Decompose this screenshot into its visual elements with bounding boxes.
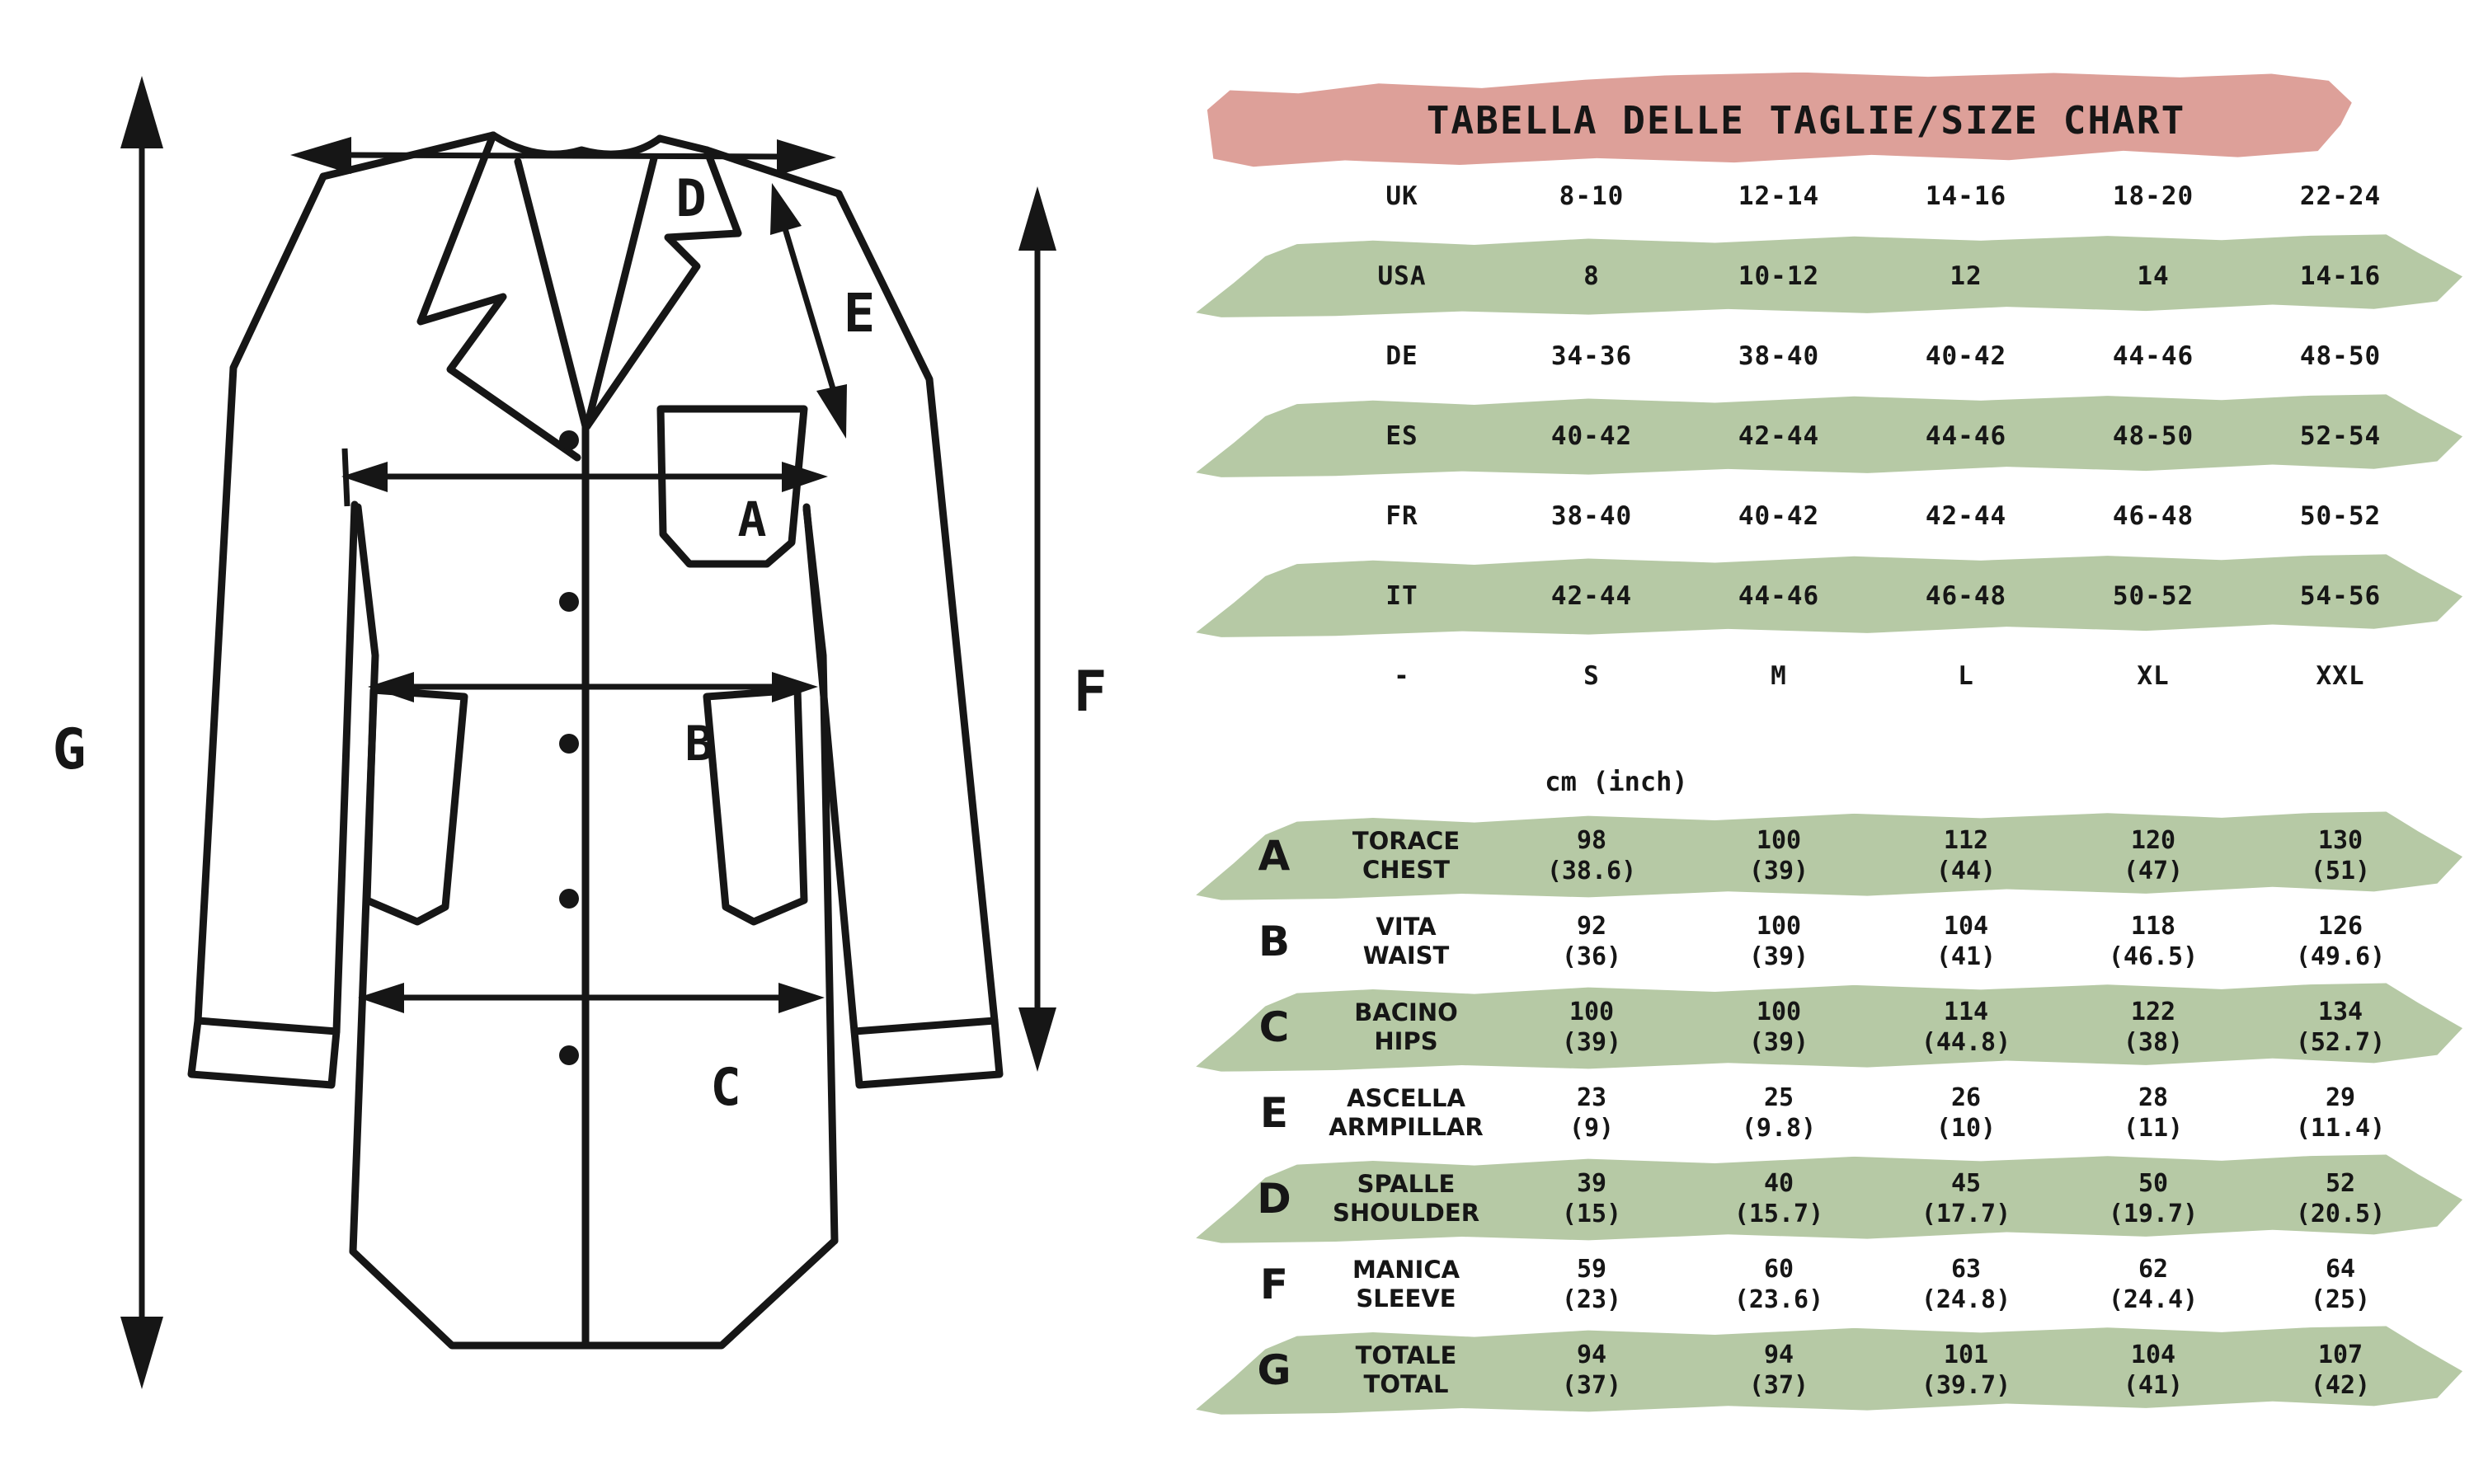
size-value-cell: 22-24: [2253, 156, 2428, 236]
size-value-cell: XL: [2066, 636, 2241, 716]
value-inch: (15): [1562, 1199, 1621, 1229]
value-inch: (23.6): [1734, 1284, 1823, 1315]
size-value-cell: 38-40: [1504, 476, 1679, 556]
measurement-row: FMANICASLEEVE59(23)60(23.6)63(24.8)62(24…: [1221, 1242, 2474, 1327]
value-cm: 92: [1577, 911, 1606, 942]
value-inch: (10): [1936, 1113, 1996, 1144]
region-cell: IT: [1332, 556, 1472, 636]
arrow-A-head-right: [782, 462, 828, 492]
arrow-G-head-bottom: [120, 1317, 163, 1389]
value-inch: (46.5): [2109, 942, 2198, 972]
lab-coat-diagram: A B C D E F G: [0, 0, 1221, 1484]
arrow-F-head-bottom: [1018, 1007, 1056, 1072]
value-inch: (20.5): [2296, 1199, 2385, 1229]
size-value-cell: 12: [1879, 236, 2053, 316]
size-value-cell: 34-36: [1504, 316, 1679, 396]
value-inch: (52.7): [2296, 1027, 2385, 1058]
measurement-row: BVITAWAIST92(36)100(39)104(41)118(46.5)1…: [1221, 899, 2474, 984]
value-cm: 107: [2318, 1340, 2363, 1370]
value-inch: (39): [1749, 1027, 1808, 1058]
measure-value-cell: 100(39): [1691, 984, 1866, 1070]
region-cell: UK: [1332, 156, 1472, 236]
size-value-cell: L: [1879, 636, 2053, 716]
value-inch: (47): [2124, 856, 2183, 886]
coat-left-sleeve-inner: [336, 505, 355, 1031]
measure-value-cell: 120(47): [2066, 813, 2241, 899]
value-inch: (9): [1569, 1113, 1614, 1144]
region-cell: DE: [1332, 316, 1472, 396]
value-inch: (25): [2311, 1284, 2370, 1315]
size-value-cell: XXL: [2253, 636, 2428, 716]
value-cm: 101: [1944, 1340, 1988, 1370]
value-cm: 40: [1764, 1168, 1794, 1199]
value-cm: 94: [1764, 1340, 1794, 1370]
measure-value-cell: 52(20.5): [2253, 1156, 2428, 1242]
measure-name-en: TOTAL: [1364, 1370, 1449, 1399]
coat-neck-v: [518, 158, 654, 426]
size-value-cell: 48-50: [2253, 316, 2428, 396]
measure-name-it: SPALLE: [1357, 1170, 1456, 1199]
measure-value-cell: 104(41): [2066, 1327, 2241, 1413]
measure-name-it: VITA: [1376, 913, 1436, 942]
measure-value-cell: 59(23): [1504, 1242, 1679, 1327]
conversion-row: UK8-1012-1414-1618-2022-24: [1221, 156, 2474, 236]
measure-value-cell: 60(23.6): [1691, 1242, 1866, 1327]
measure-value-cell: 64(25): [2253, 1242, 2428, 1327]
measure-value-cell: 94(37): [1504, 1327, 1679, 1413]
coat-right-lapel: [587, 150, 738, 426]
size-value-cell: 42-44: [1691, 396, 1866, 476]
coat-left-pocket: [367, 690, 464, 922]
arrow-C-head-right: [778, 983, 825, 1013]
value-inch: (36): [1562, 942, 1621, 972]
size-value-cell: 50-52: [2253, 476, 2428, 556]
value-inch: (49.6): [2296, 942, 2385, 972]
measure-name-cell: TOTALETOTAL: [1278, 1327, 1534, 1413]
value-cm: 98: [1577, 825, 1606, 856]
value-cm: 28: [2138, 1082, 2168, 1113]
measure-value-cell: 29(11.4): [2253, 1070, 2428, 1156]
button-5: [559, 1045, 579, 1065]
arrow-E-head-top: [770, 183, 802, 235]
arrow-G-head-top: [120, 76, 163, 148]
size-value-cell: 40-42: [1691, 476, 1866, 556]
arrow-E-head-bottom: [816, 384, 847, 439]
arrow-D-head-right: [777, 139, 836, 176]
value-inch: (15.7): [1734, 1199, 1823, 1229]
measure-name-en: ARMPILLAR: [1329, 1113, 1483, 1142]
value-inch: (38.6): [1547, 856, 1636, 886]
page-title: TABELLA DELLE TAGLIE/SIZE CHART: [1221, 82, 2392, 158]
value-inch: (19.7): [2109, 1199, 2198, 1229]
size-value-cell: 46-48: [1879, 556, 2053, 636]
arrow-D-head-left: [290, 137, 351, 174]
value-inch: (39): [1562, 1027, 1621, 1058]
arrow-F-head-top: [1018, 186, 1056, 251]
measure-value-cell: 100(39): [1691, 813, 1866, 899]
size-value-cell: 12-14: [1691, 156, 1866, 236]
size-value-cell: 54-56: [2253, 556, 2428, 636]
measure-name-cell: TORACECHEST: [1278, 813, 1534, 899]
value-inch: (39): [1749, 942, 1808, 972]
region-cell: FR: [1332, 476, 1472, 556]
arrow-D: [346, 155, 783, 157]
measure-name-en: SLEEVE: [1356, 1284, 1456, 1313]
value-inch: (41): [2124, 1370, 2183, 1401]
measure-name-it: TORACE: [1352, 827, 1460, 856]
value-inch: (17.7): [1921, 1199, 2011, 1229]
value-cm: 120: [2131, 825, 2175, 856]
value-inch: (24.8): [1921, 1284, 2011, 1315]
value-cm: 59: [1577, 1254, 1606, 1284]
coat-right-pocket: [707, 690, 804, 922]
value-cm: 94: [1577, 1340, 1606, 1370]
button-4: [559, 889, 579, 909]
value-cm: 39: [1577, 1168, 1606, 1199]
value-cm: 52: [2326, 1168, 2355, 1199]
value-cm: 100: [1569, 997, 1614, 1027]
measure-value-cell: 107(42): [2253, 1327, 2428, 1413]
measure-name-en: CHEST: [1362, 856, 1450, 885]
value-inch: (44.8): [1921, 1027, 2011, 1058]
size-value-cell: 52-54: [2253, 396, 2428, 476]
region-cell: -: [1332, 636, 1472, 716]
conversion-row: USA810-12121414-16: [1221, 236, 2474, 316]
coat-left-sleeve-outer: [198, 176, 323, 1021]
size-value-cell: 44-46: [1691, 556, 1866, 636]
measure-value-cell: 94(37): [1691, 1327, 1866, 1413]
size-chart-panel: TABELLA DELLE TAGLIE/SIZE CHART UK8-1012…: [1221, 0, 2474, 1484]
measure-value-cell: 39(15): [1504, 1156, 1679, 1242]
measure-name-cell: ASCELLAARMPILLAR: [1278, 1070, 1534, 1156]
coat-hem: [353, 1241, 835, 1345]
size-value-cell: 46-48: [2066, 476, 2241, 556]
diagram-label-B: B: [685, 716, 714, 772]
value-cm: 104: [2131, 1340, 2175, 1370]
measurement-row: GTOTALETOTAL94(37)94(37)101(39.7)104(41)…: [1221, 1327, 2474, 1413]
value-cm: 100: [1757, 825, 1801, 856]
value-inch: (39.7): [1921, 1370, 2011, 1401]
measure-value-cell: 23(9): [1504, 1070, 1679, 1156]
measure-name-it: ASCELLA: [1347, 1084, 1465, 1113]
units-header: cm (inch): [1501, 757, 1732, 806]
value-inch: (24.4): [2109, 1284, 2198, 1315]
conversion-row: FR38-4040-4242-4446-4850-52: [1221, 476, 2474, 556]
region-cell: USA: [1332, 236, 1472, 316]
coat-right-body: [807, 510, 835, 1241]
value-cm: 122: [2131, 997, 2175, 1027]
coat-right-cuff: [854, 1021, 999, 1085]
value-cm: 112: [1944, 825, 1988, 856]
measure-value-cell: 112(44): [1879, 813, 2053, 899]
size-value-cell: 48-50: [2066, 396, 2241, 476]
value-cm: 50: [2138, 1168, 2168, 1199]
size-value-cell: 8: [1504, 236, 1679, 316]
size-value-cell: 50-52: [2066, 556, 2241, 636]
region-cell: ES: [1332, 396, 1472, 476]
value-cm: 64: [2326, 1254, 2355, 1284]
measure-value-cell: 101(39.7): [1879, 1327, 2053, 1413]
value-cm: 26: [1951, 1082, 1981, 1113]
value-cm: 126: [2318, 911, 2363, 942]
measure-name-cell: BACINOHIPS: [1278, 984, 1534, 1070]
value-cm: 62: [2138, 1254, 2168, 1284]
diagram-label-D: D: [675, 168, 706, 228]
measure-name-cell: SPALLESHOULDER: [1278, 1156, 1534, 1242]
measure-value-cell: 40(15.7): [1691, 1156, 1866, 1242]
size-value-cell: S: [1504, 636, 1679, 716]
size-value-cell: 10-12: [1691, 236, 1866, 316]
diagram-label-E: E: [844, 284, 876, 345]
conversion-row: ES40-4242-4444-4648-5052-54: [1221, 396, 2474, 476]
measure-name-it: MANICA: [1352, 1256, 1460, 1284]
measure-value-cell: 28(11): [2066, 1070, 2241, 1156]
measure-name-en: WAIST: [1363, 942, 1450, 970]
measure-value-cell: 45(17.7): [1879, 1156, 2053, 1242]
measure-name-cell: MANICASLEEVE: [1278, 1242, 1534, 1327]
size-value-cell: 44-46: [2066, 316, 2241, 396]
size-value-cell: 14-16: [1879, 156, 2053, 236]
measure-value-cell: 92(36): [1504, 899, 1679, 984]
size-value-cell: 38-40: [1691, 316, 1866, 396]
value-inch: (42): [2311, 1370, 2370, 1401]
value-inch: (41): [1936, 942, 1996, 972]
measure-name-it: BACINO: [1354, 998, 1458, 1027]
measure-name-en: HIPS: [1374, 1027, 1437, 1056]
value-cm: 134: [2318, 997, 2363, 1027]
measure-value-cell: 62(24.4): [2066, 1242, 2241, 1327]
size-value-cell: 14-16: [2253, 236, 2428, 316]
measurement-row: EASCELLAARMPILLAR23(9)25(9.8)26(10)28(11…: [1221, 1070, 2474, 1156]
value-cm: 104: [1944, 911, 1988, 942]
measurement-row: DSPALLESHOULDER39(15)40(15.7)45(17.7)50(…: [1221, 1156, 2474, 1242]
size-value-cell: 18-20: [2066, 156, 2241, 236]
coat-left-cuff: [191, 1021, 336, 1085]
size-value-cell: 44-46: [1879, 396, 2053, 476]
value-inch: (11): [2124, 1113, 2183, 1144]
value-inch: (9.8): [1742, 1113, 1816, 1144]
diagram-label-G: G: [53, 717, 87, 782]
value-cm: 45: [1951, 1168, 1981, 1199]
value-cm: 23: [1577, 1082, 1606, 1113]
conversion-row: -SMLXLXXL: [1221, 636, 2474, 716]
size-value-cell: 40-42: [1879, 316, 2053, 396]
coat-back-collar: [493, 135, 660, 154]
value-inch: (11.4): [2296, 1113, 2385, 1144]
measure-value-cell: 114(44.8): [1879, 984, 2053, 1070]
value-inch: (37): [1749, 1370, 1808, 1401]
button-1: [559, 430, 579, 450]
value-cm: 100: [1757, 997, 1801, 1027]
measure-value-cell: 100(39): [1691, 899, 1866, 984]
size-value-cell: 42-44: [1504, 556, 1679, 636]
size-value-cell: 40-42: [1504, 396, 1679, 476]
measure-value-cell: 130(51): [2253, 813, 2428, 899]
value-cm: 100: [1757, 911, 1801, 942]
diagram-label-C: C: [710, 1057, 741, 1117]
value-inch: (39): [1749, 856, 1808, 886]
size-value-cell: M: [1691, 636, 1866, 716]
arrow-E: [784, 226, 835, 394]
measure-value-cell: 25(9.8): [1691, 1070, 1866, 1156]
value-inch: (37): [1562, 1370, 1621, 1401]
value-cm: 25: [1764, 1082, 1794, 1113]
size-chart-page: A B C D E F G TABELLA DELLE TAGLIE/SIZE …: [0, 0, 2474, 1484]
value-inch: (44): [1936, 856, 1996, 886]
measure-value-cell: 50(19.7): [2066, 1156, 2241, 1242]
value-inch: (51): [2311, 856, 2370, 886]
measurement-row: ATORACECHEST98(38.6)100(39)112(44)120(47…: [1221, 813, 2474, 899]
measure-value-cell: 118(46.5): [2066, 899, 2241, 984]
size-value-cell: 42-44: [1879, 476, 2053, 556]
value-cm: 118: [2131, 911, 2175, 942]
value-inch: (23): [1562, 1284, 1621, 1315]
value-cm: 63: [1951, 1254, 1981, 1284]
measure-name-it: TOTALE: [1356, 1341, 1457, 1370]
measure-name-cell: VITAWAIST: [1278, 899, 1534, 984]
measure-value-cell: 122(38): [2066, 984, 2241, 1070]
measure-value-cell: 134(52.7): [2253, 984, 2428, 1070]
value-cm: 114: [1944, 997, 1988, 1027]
measure-value-cell: 104(41): [1879, 899, 2053, 984]
value-cm: 29: [2326, 1082, 2355, 1113]
button-2: [559, 592, 579, 612]
measure-value-cell: 126(49.6): [2253, 899, 2428, 984]
conversion-row: DE34-3638-4040-4244-4648-50: [1221, 316, 2474, 396]
measurement-row: CBACINOHIPS100(39)100(39)114(44.8)122(38…: [1221, 984, 2474, 1070]
size-value-cell: 8-10: [1504, 156, 1679, 236]
value-cm: 60: [1764, 1254, 1794, 1284]
measure-value-cell: 26(10): [1879, 1070, 2053, 1156]
diagram-label-A: A: [738, 491, 767, 547]
conversion-row: IT42-4444-4646-4850-5254-56: [1221, 556, 2474, 636]
value-cm: 130: [2318, 825, 2363, 856]
button-3: [559, 734, 579, 754]
measure-value-cell: 100(39): [1504, 984, 1679, 1070]
size-value-cell: 14: [2066, 236, 2241, 316]
measure-value-cell: 98(38.6): [1504, 813, 1679, 899]
diagram-label-F: F: [1074, 660, 1108, 725]
measure-name-en: SHOULDER: [1333, 1199, 1479, 1228]
value-inch: (38): [2124, 1027, 2183, 1058]
measure-value-cell: 63(24.8): [1879, 1242, 2053, 1327]
